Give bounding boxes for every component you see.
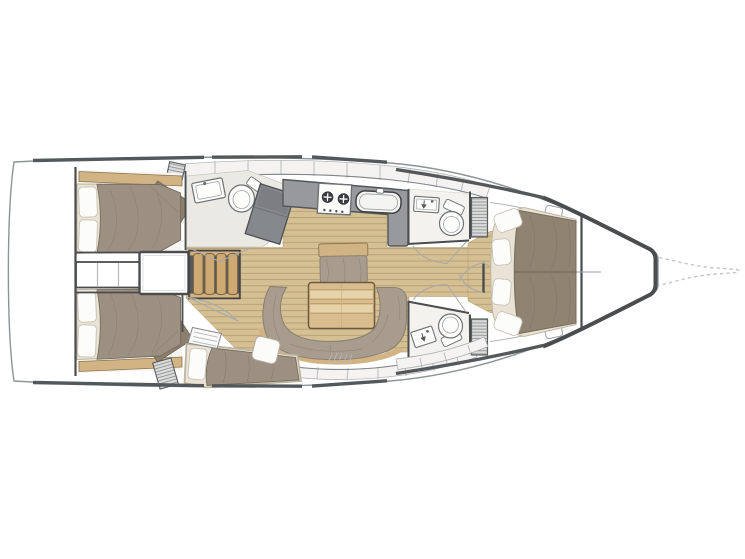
toilet-icon	[229, 185, 255, 212]
pillow	[78, 187, 97, 218]
pillow	[491, 278, 511, 305]
pillow	[77, 325, 96, 358]
aft-cabin-top	[77, 170, 193, 254]
toilet-icon	[439, 314, 463, 338]
stair-tread	[205, 254, 215, 295]
floor-plan	[0, 0, 745, 559]
companionway-stairs	[189, 251, 240, 299]
forward-bench	[319, 243, 369, 283]
stove-icon	[317, 183, 352, 215]
dining-table	[309, 283, 375, 329]
boat-plan-svg	[0, 0, 745, 559]
washbasin-icon	[413, 196, 439, 213]
stair-tread	[194, 254, 204, 295]
bowsprit	[659, 258, 739, 286]
pillow	[77, 292, 96, 323]
pillow	[188, 348, 208, 380]
engine-box	[140, 252, 189, 294]
louvered-locker	[472, 198, 488, 238]
stair-tread	[228, 254, 238, 295]
pillow	[491, 238, 511, 265]
toilet-icon	[440, 212, 464, 236]
duvet	[97, 184, 181, 253]
aft-cabin-bottom	[77, 289, 193, 373]
fwd-cabin	[490, 203, 582, 342]
pillow	[78, 220, 97, 253]
duvet	[97, 289, 181, 359]
engine-corridor	[76, 262, 140, 288]
